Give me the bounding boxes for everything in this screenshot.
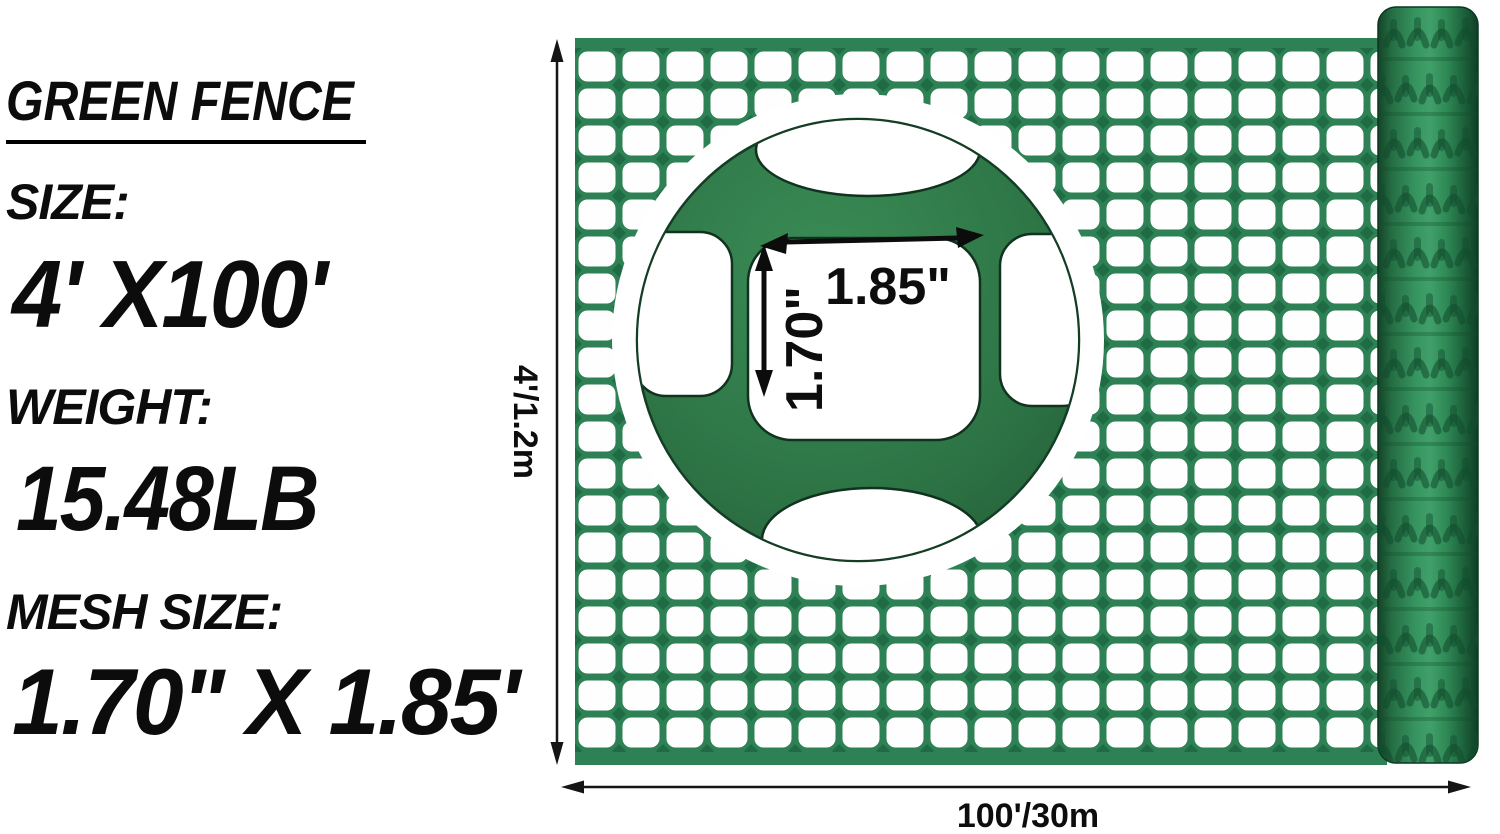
product-infographic: GREEN FENCE SIZE: 4' X100' WEIGHT: 15.48… [0, 0, 1500, 834]
mesh-height-label: 1.70" [776, 286, 834, 412]
mesh-bottom-selvage [575, 752, 1387, 765]
length-dimension-arrow [561, 781, 1471, 794]
fence-height-label: 4'/1.2m [506, 365, 544, 479]
fence-length-label: 100'/30m [957, 797, 1099, 834]
fence-roll [1378, 7, 1478, 763]
roll-texture [1378, 7, 1478, 763]
mesh-top-selvage [575, 38, 1387, 49]
mesh-width-label: 1.85" [825, 258, 951, 316]
fence-illustration: 1.85" 1.70" 4'/1.2m 100'/30m [0, 0, 1500, 834]
height-dimension-arrow [551, 39, 564, 765]
